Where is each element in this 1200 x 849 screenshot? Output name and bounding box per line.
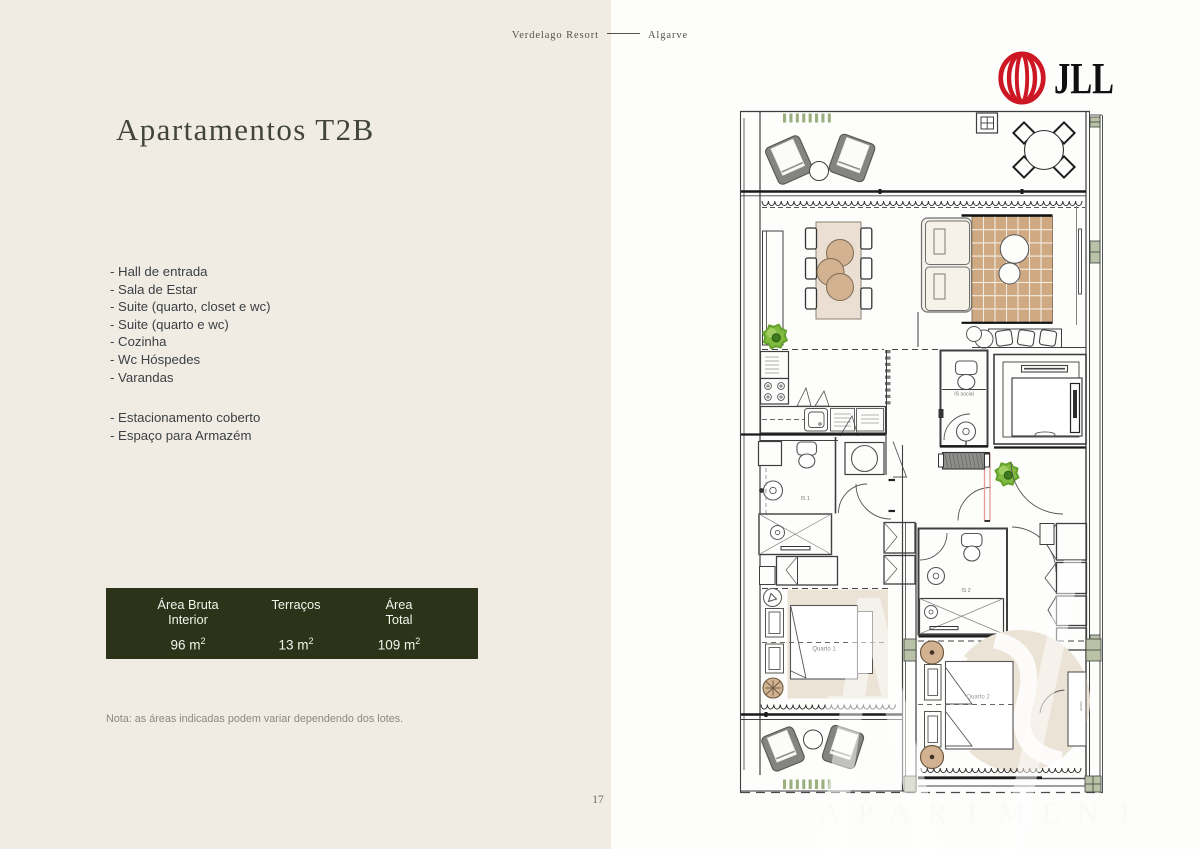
- svg-text:closet: closet: [1079, 701, 1083, 710]
- svg-text:IS 1: IS 1: [801, 496, 810, 502]
- svg-text:APARTMENT: APARTMENT: [819, 797, 1151, 830]
- svg-text:tv: tv: [1084, 260, 1089, 263]
- svg-text:Quarto 1: Quarto 1: [812, 647, 836, 653]
- svg-text:Quarto 2: Quarto 2: [966, 695, 990, 701]
- svg-text:IS 2: IS 2: [961, 588, 970, 594]
- svg-text:IS social: IS social: [954, 392, 974, 398]
